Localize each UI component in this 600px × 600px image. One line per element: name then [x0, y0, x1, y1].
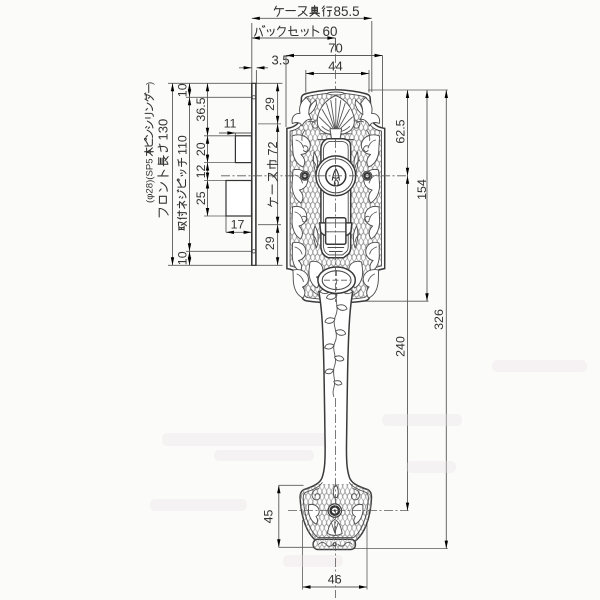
svg-text:36.5: 36.5: [194, 97, 208, 121]
svg-text:326: 326: [432, 309, 446, 330]
svg-text:62.5: 62.5: [393, 119, 407, 143]
svg-text:60: 60: [323, 24, 338, 39]
svg-text:): ): [145, 82, 156, 85]
svg-text:10: 10: [175, 251, 189, 265]
svg-text:154: 154: [415, 179, 429, 200]
svg-text:11: 11: [224, 117, 237, 131]
svg-text:29: 29: [263, 97, 277, 111]
svg-text:29: 29: [263, 236, 277, 250]
svg-text:(φ28)(SP5: (φ28)(SP5: [145, 158, 156, 203]
svg-text:110: 110: [175, 135, 189, 155]
svg-text:25: 25: [194, 191, 208, 205]
svg-text:20: 20: [194, 142, 208, 156]
svg-text:10: 10: [175, 83, 189, 97]
svg-text:45: 45: [261, 510, 275, 524]
svg-text:46: 46: [328, 572, 342, 586]
svg-text:3.5: 3.5: [272, 53, 290, 68]
svg-text:130: 130: [156, 119, 171, 141]
svg-text:72: 72: [266, 141, 280, 155]
svg-text:17: 17: [231, 218, 245, 232]
svg-text:85.5: 85.5: [334, 4, 360, 19]
svg-text:12: 12: [194, 165, 208, 179]
svg-text:240: 240: [393, 336, 407, 357]
